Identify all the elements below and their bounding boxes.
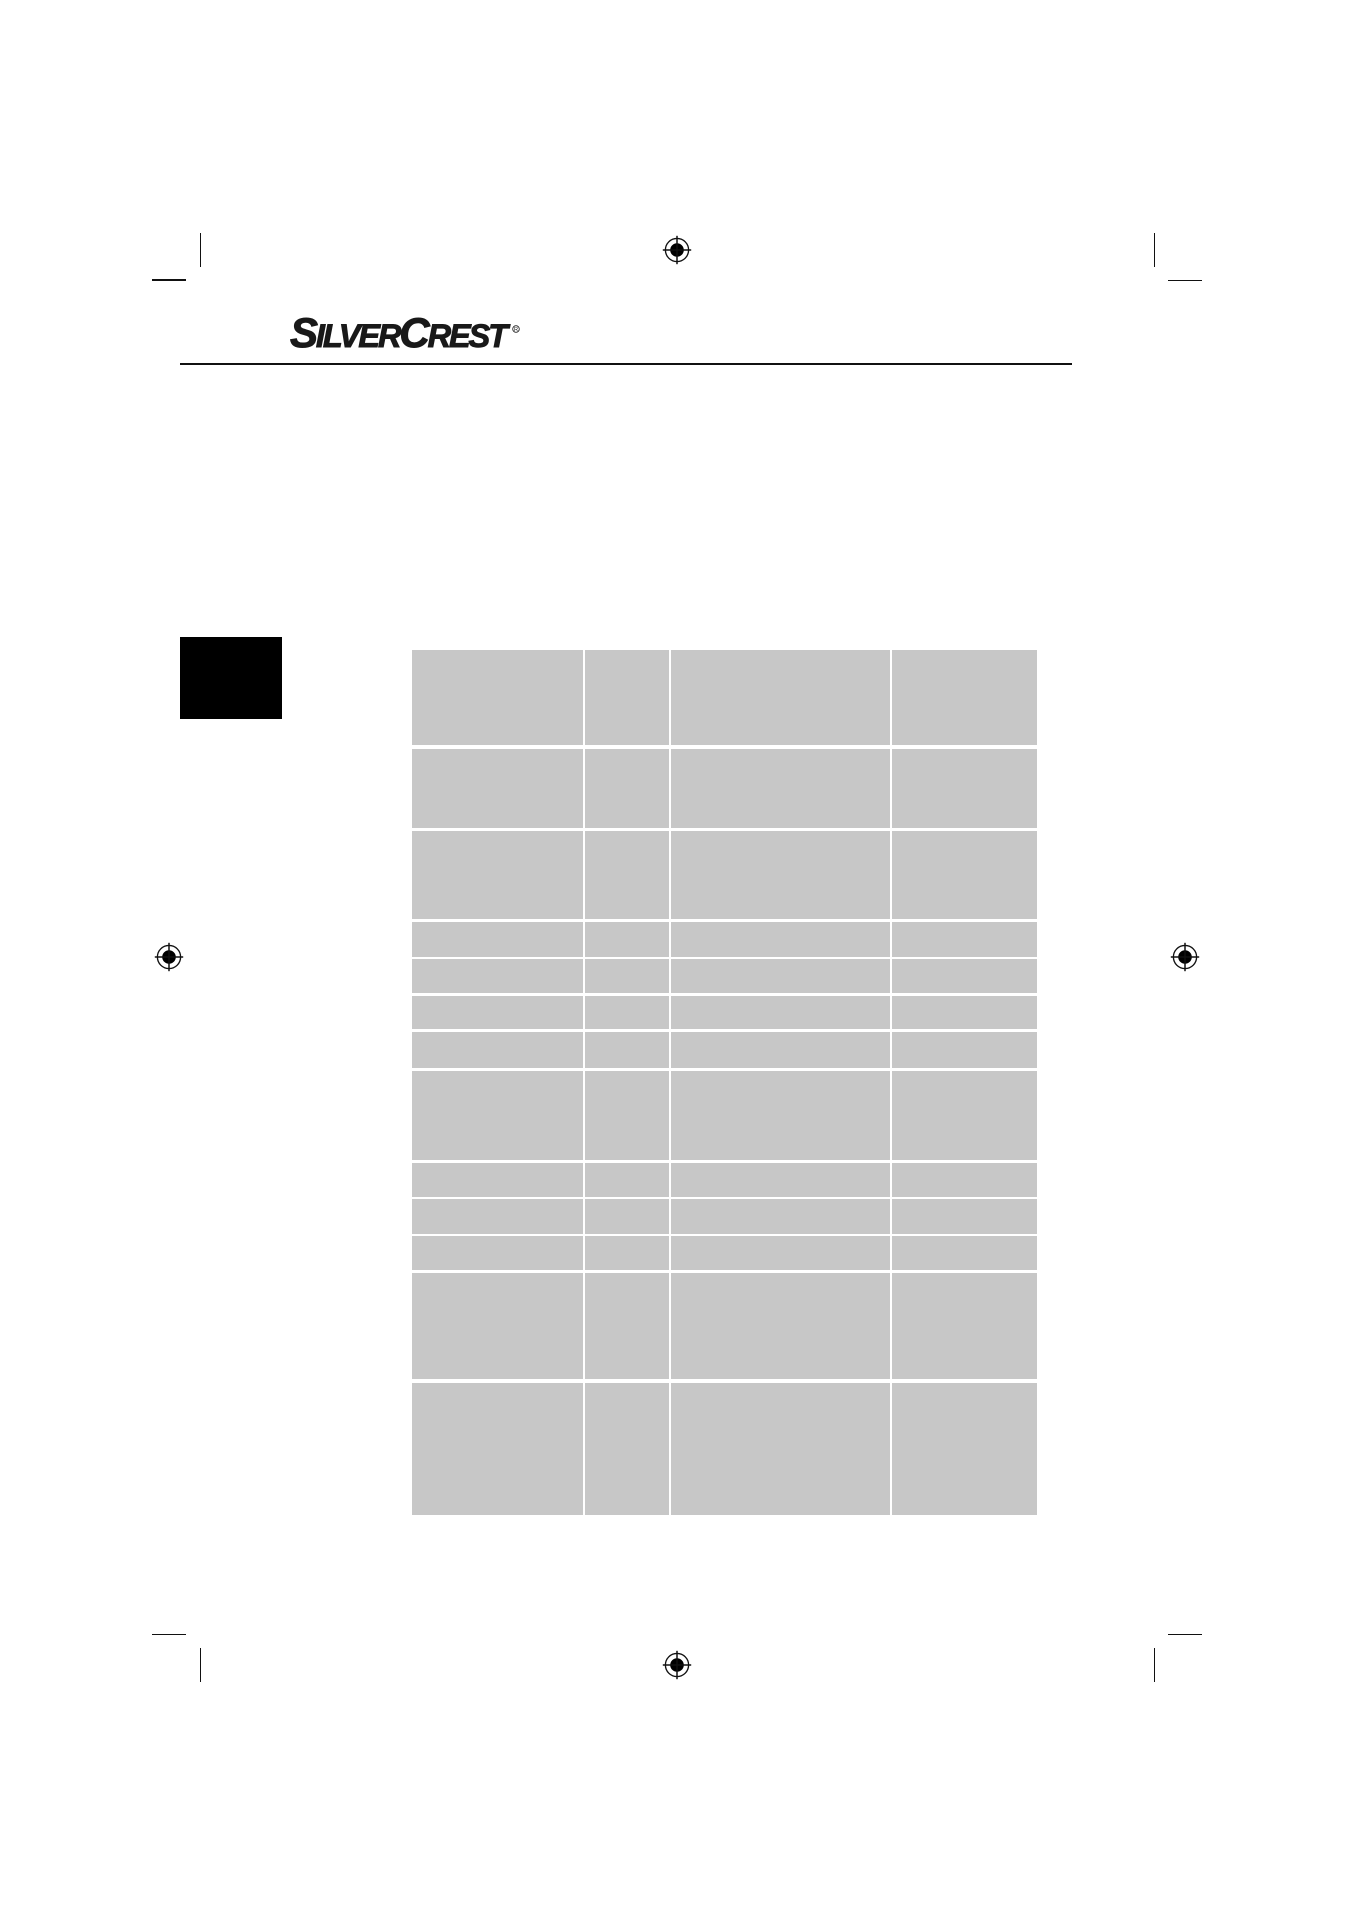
svg-text:R: R <box>513 327 517 333</box>
